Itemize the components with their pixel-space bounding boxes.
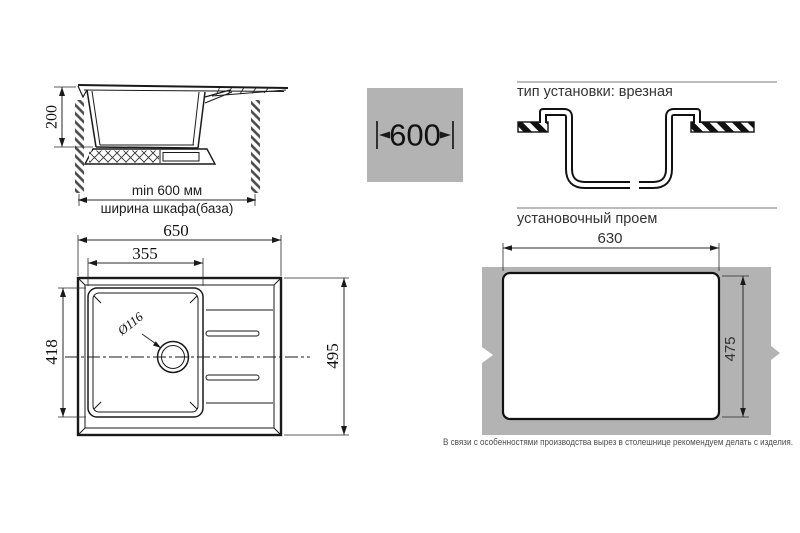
cutout-section: установочный проем 630 475 В связи с осо… bbox=[443, 208, 793, 448]
bowl-depth-label: 418 bbox=[42, 339, 61, 365]
installation-type-section: тип установки: врезная bbox=[517, 82, 777, 185]
sink-top-view: 650 355 418 495 Ø1 bbox=[42, 221, 349, 435]
cabinet-section-view: 200 min 600 мм ширина шкафа(база) bbox=[44, 85, 288, 216]
production-note: В связи с особенностями производства выр… bbox=[443, 437, 793, 448]
cutout-header: установочный проем bbox=[517, 211, 657, 227]
height-dim-label: 200 bbox=[44, 105, 61, 129]
dimension-overall-depth-495: 495 bbox=[284, 278, 349, 435]
cabinet-width-label: ширина шкафа(база) bbox=[101, 201, 234, 216]
badge-value: 600 bbox=[389, 118, 441, 153]
bowl-width-label: 355 bbox=[132, 244, 158, 263]
cabinet-right-wall bbox=[251, 100, 260, 193]
overall-width-label: 650 bbox=[163, 221, 189, 240]
countertop-left-strip bbox=[518, 122, 548, 132]
overall-depth-label: 495 bbox=[323, 343, 342, 369]
dimension-min-600: min 600 мм ширина шкафа(база) bbox=[78, 183, 256, 216]
sink-technical-drawing: 200 min 600 мм ширина шкафа(база) 600 ти… bbox=[0, 0, 800, 533]
cutout-width-label: 630 bbox=[597, 230, 622, 247]
section-crosshatch bbox=[89, 151, 159, 163]
min-width-label: min 600 мм bbox=[132, 183, 202, 198]
dimension-height-200: 200 bbox=[44, 87, 93, 147]
cutout-hole bbox=[503, 273, 719, 419]
cutout-height-label: 475 bbox=[722, 336, 739, 361]
dimension-overall-width-650: 650 bbox=[78, 221, 281, 276]
cabinet-width-badge: 600 bbox=[367, 88, 463, 182]
countertop-right-strip bbox=[691, 122, 754, 132]
drawing-svg: 200 min 600 мм ширина шкафа(база) 600 ти… bbox=[0, 0, 800, 533]
cabinet-left-wall bbox=[75, 100, 84, 193]
dimension-cutout-width-630: 630 bbox=[503, 230, 719, 271]
inset-sink-profile bbox=[543, 112, 697, 185]
break-notch-right bbox=[771, 346, 780, 360]
installation-type-header: тип установки: врезная bbox=[517, 84, 673, 100]
